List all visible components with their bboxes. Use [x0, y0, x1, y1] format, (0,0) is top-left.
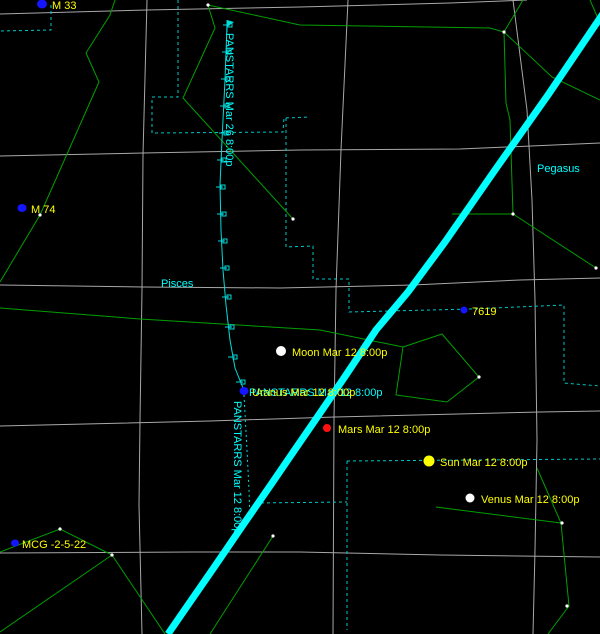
grid-line — [513, 0, 537, 634]
constellation-line — [548, 523, 569, 634]
star-dot — [271, 534, 274, 537]
grid-line — [0, 0, 527, 14]
moon-marker[interactable] — [276, 346, 286, 356]
pisces-label: Pisces — [161, 278, 194, 290]
panstarrs-mar26-label: PANSTARRS Mar 26 8:00p — [223, 33, 235, 166]
constellation-lines — [0, 0, 600, 634]
comet-flag-icon — [227, 20, 234, 27]
comet-uranus-marker[interactable] — [240, 387, 249, 395]
grid-line — [0, 278, 600, 288]
star-dot — [502, 30, 505, 33]
constellation-line — [504, 32, 513, 214]
galaxy-m74-label: M 74 — [31, 204, 55, 216]
text-labels: M 33M 74MCG -2-5-227619Moon Mar 12 8:00p… — [22, 0, 580, 551]
sky-chart: M 33M 74MCG -2-5-227619Moon Mar 12 8:00p… — [0, 0, 600, 634]
grid-line — [333, 0, 348, 634]
constellation-boundary-line — [286, 118, 600, 386]
constellation-line — [208, 5, 504, 32]
constellation-line — [396, 334, 479, 402]
galaxy-m33[interactable] — [37, 0, 47, 9]
grid-lines — [0, 0, 600, 634]
galaxy-mcg-2-5-22-label: MCG -2-5-22 — [22, 539, 86, 551]
constellation-line — [210, 536, 273, 634]
constellation-boundary-line — [0, 5, 51, 31]
star-dot — [291, 217, 294, 220]
constellation-line — [513, 214, 596, 268]
star-dot — [594, 266, 597, 269]
mars-marker[interactable] — [323, 424, 331, 432]
star-dot — [206, 3, 209, 6]
comet-track-past-line — [244, 395, 250, 520]
sun-marker-label: Sun Mar 12 8:00p — [440, 457, 527, 469]
constellation-line — [0, 555, 112, 632]
grid-line — [139, 0, 147, 634]
venus-marker[interactable] — [466, 494, 475, 503]
star-dot — [477, 375, 480, 378]
constellation-line — [0, 0, 115, 282]
galaxy-mcg-2-5-22[interactable] — [11, 540, 19, 547]
galaxy-m74[interactable] — [18, 204, 27, 212]
star-dot — [110, 553, 113, 556]
comet-uranus-marker-label: Uranus Mar 12 8:00p — [252, 387, 355, 399]
constellation-line — [0, 308, 403, 347]
panstarrs-mar12-label: PANSTARRS Mar 12 8:00p — [231, 401, 243, 534]
venus-marker-label: Venus Mar 12 8:00p — [481, 494, 579, 506]
constellation-line — [183, 5, 293, 219]
star-dot — [511, 212, 514, 215]
star-dot — [58, 527, 61, 530]
galaxy-7619[interactable] — [461, 307, 468, 314]
grid-line — [0, 411, 600, 426]
sun-marker[interactable] — [424, 456, 435, 467]
star-dot — [565, 604, 568, 607]
sky-map[interactable]: M 33M 74MCG -2-5-227619Moon Mar 12 8:00p… — [0, 0, 600, 634]
grid-line — [0, 552, 600, 557]
star-dot — [560, 521, 563, 524]
mars-marker-label: Mars Mar 12 8:00p — [338, 424, 430, 436]
moon-marker-label: Moon Mar 12 8:00p — [292, 347, 387, 359]
galaxy-m33-label: M 33 — [52, 0, 76, 12]
pegasus-label: Pegasus — [537, 163, 580, 175]
constellation-line — [112, 555, 165, 634]
galaxy-7619-label: 7619 — [472, 306, 496, 318]
constellation-line — [436, 507, 561, 523]
